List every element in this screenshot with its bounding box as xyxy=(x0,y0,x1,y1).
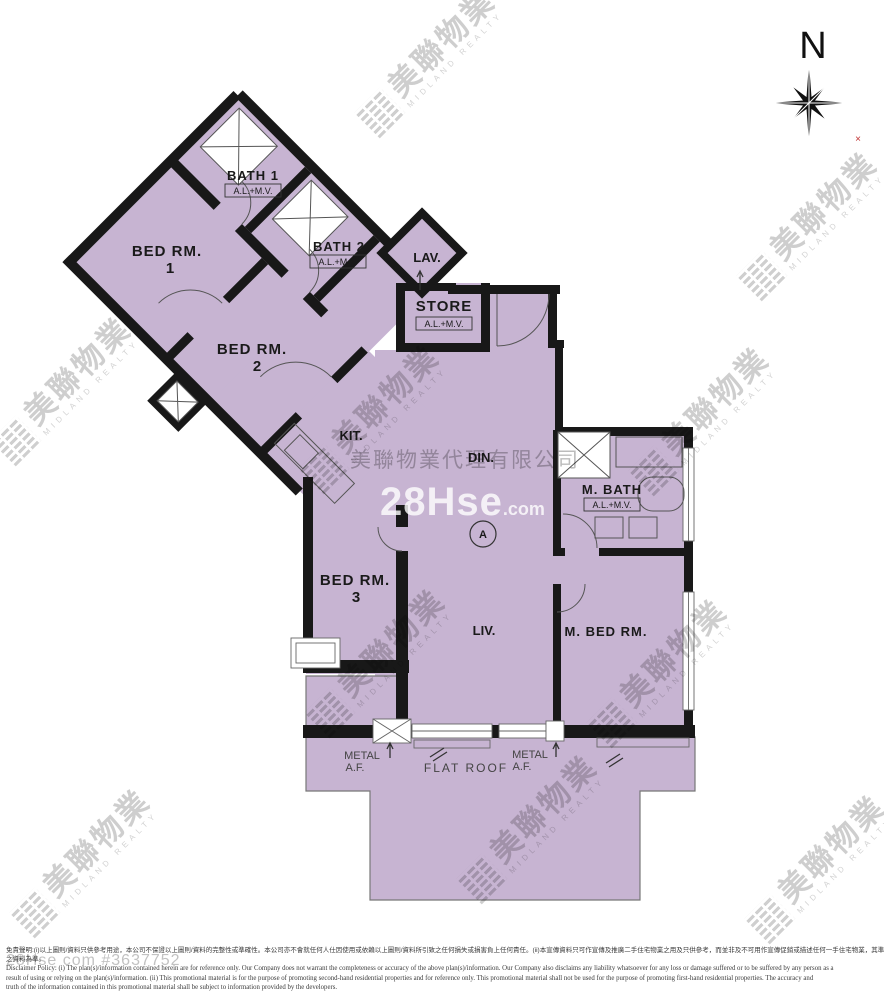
kitchen-label: KIT. xyxy=(339,428,362,443)
floorplan-page: { "colors": { "floor_fill": "#c7b4d2", "… xyxy=(0,0,884,1000)
store-vent-label: A.L.+M.V. xyxy=(425,319,464,329)
compass-north-label: N xyxy=(799,25,826,67)
bath1-label: BATH 1 xyxy=(227,168,279,183)
disclaimer-en-line2: result of using or relying on the plan(s… xyxy=(6,974,882,984)
bath2-vent-label: A.L.+M.V. xyxy=(319,257,358,267)
bed1-number: 1 xyxy=(166,260,174,277)
disclaimer-block: 免責聲明:(i)以上圖則/資料只供參考用途，本公司不保證以上圖則/資料的完整性或… xyxy=(6,947,882,993)
unit-marker-label: A xyxy=(479,529,487,541)
disclaimer-en-line3: truth of the information contained in th… xyxy=(6,983,882,993)
metal-af-right-line1: METAL xyxy=(512,749,548,761)
metal-af-left-line1: METAL xyxy=(344,750,380,762)
living-label: LIV. xyxy=(473,623,496,638)
disclaimer-zh-line2: 之資料為準。 xyxy=(6,956,882,965)
bed1-label: BED RM. xyxy=(132,243,202,260)
bed2-number: 2 xyxy=(253,358,261,375)
flat-roof-label: FLAT ROOF xyxy=(424,761,508,775)
dining-label: DIN. xyxy=(468,450,494,465)
bed2-label: BED RM. xyxy=(217,341,287,358)
bed3-label: BED RM. xyxy=(320,572,390,589)
bath2-label: BATH 2 xyxy=(313,239,365,254)
bath1-vent-label: A.L.+M.V. xyxy=(234,186,273,196)
metal-af-right-line2: A.F. xyxy=(513,761,532,773)
disclaimer-zh-line1: 免責聲明:(i)以上圖則/資料只供參考用途，本公司不保證以上圖則/資料的完整性或… xyxy=(6,947,882,956)
master-bed-label: M. BED RM. xyxy=(565,624,648,639)
compass: N × xyxy=(769,25,861,145)
master-bath-label: M. BATH xyxy=(582,482,642,497)
store-label: STORE xyxy=(416,298,472,315)
bed3-number: 3 xyxy=(352,589,360,606)
red-corner-mark: × xyxy=(855,134,861,145)
floorplan-drawing: BED RM. 1 BATH 1 A.L.+M.V. BATH 2 A.L.+M… xyxy=(0,0,884,1000)
metal-af-left-line2: A.F. xyxy=(346,762,365,774)
master-bath-vent-label: A.L.+M.V. xyxy=(593,500,632,510)
lav-label: LAV. xyxy=(413,250,440,265)
disclaimer-en-line1: Disclaimer Policy: (i) The plan(s)/infor… xyxy=(6,964,882,974)
